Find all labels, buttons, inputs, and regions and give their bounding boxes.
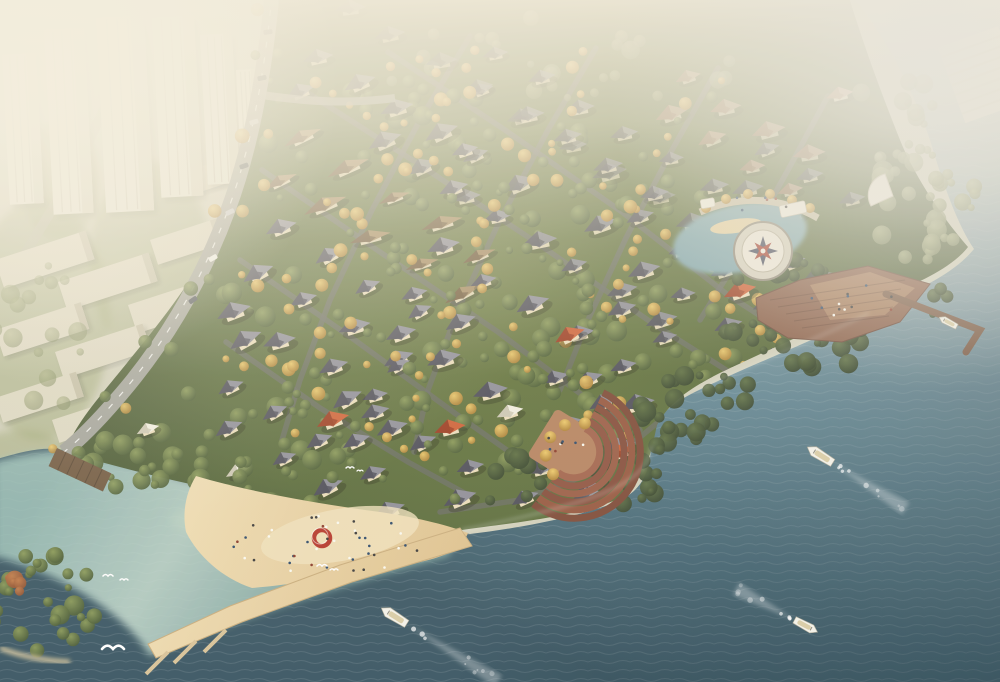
warm-cast bbox=[0, 0, 1000, 682]
aerial-rendering: Aerial rendering of a riverside villa co… bbox=[0, 0, 1000, 682]
rendering-canvas bbox=[0, 0, 1000, 682]
